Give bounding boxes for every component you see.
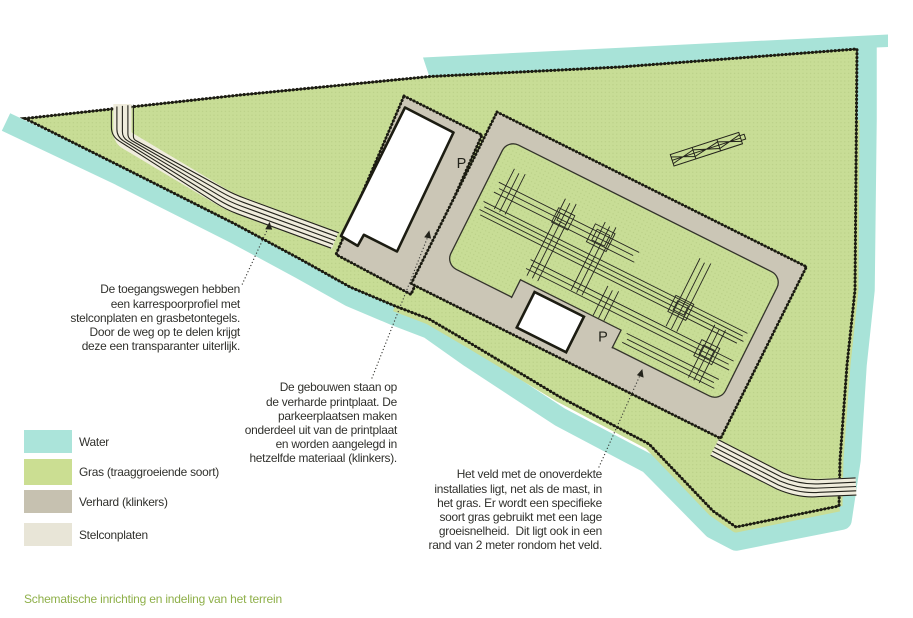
svg-text:P: P — [598, 330, 608, 346]
svg-text:P: P — [457, 156, 467, 172]
